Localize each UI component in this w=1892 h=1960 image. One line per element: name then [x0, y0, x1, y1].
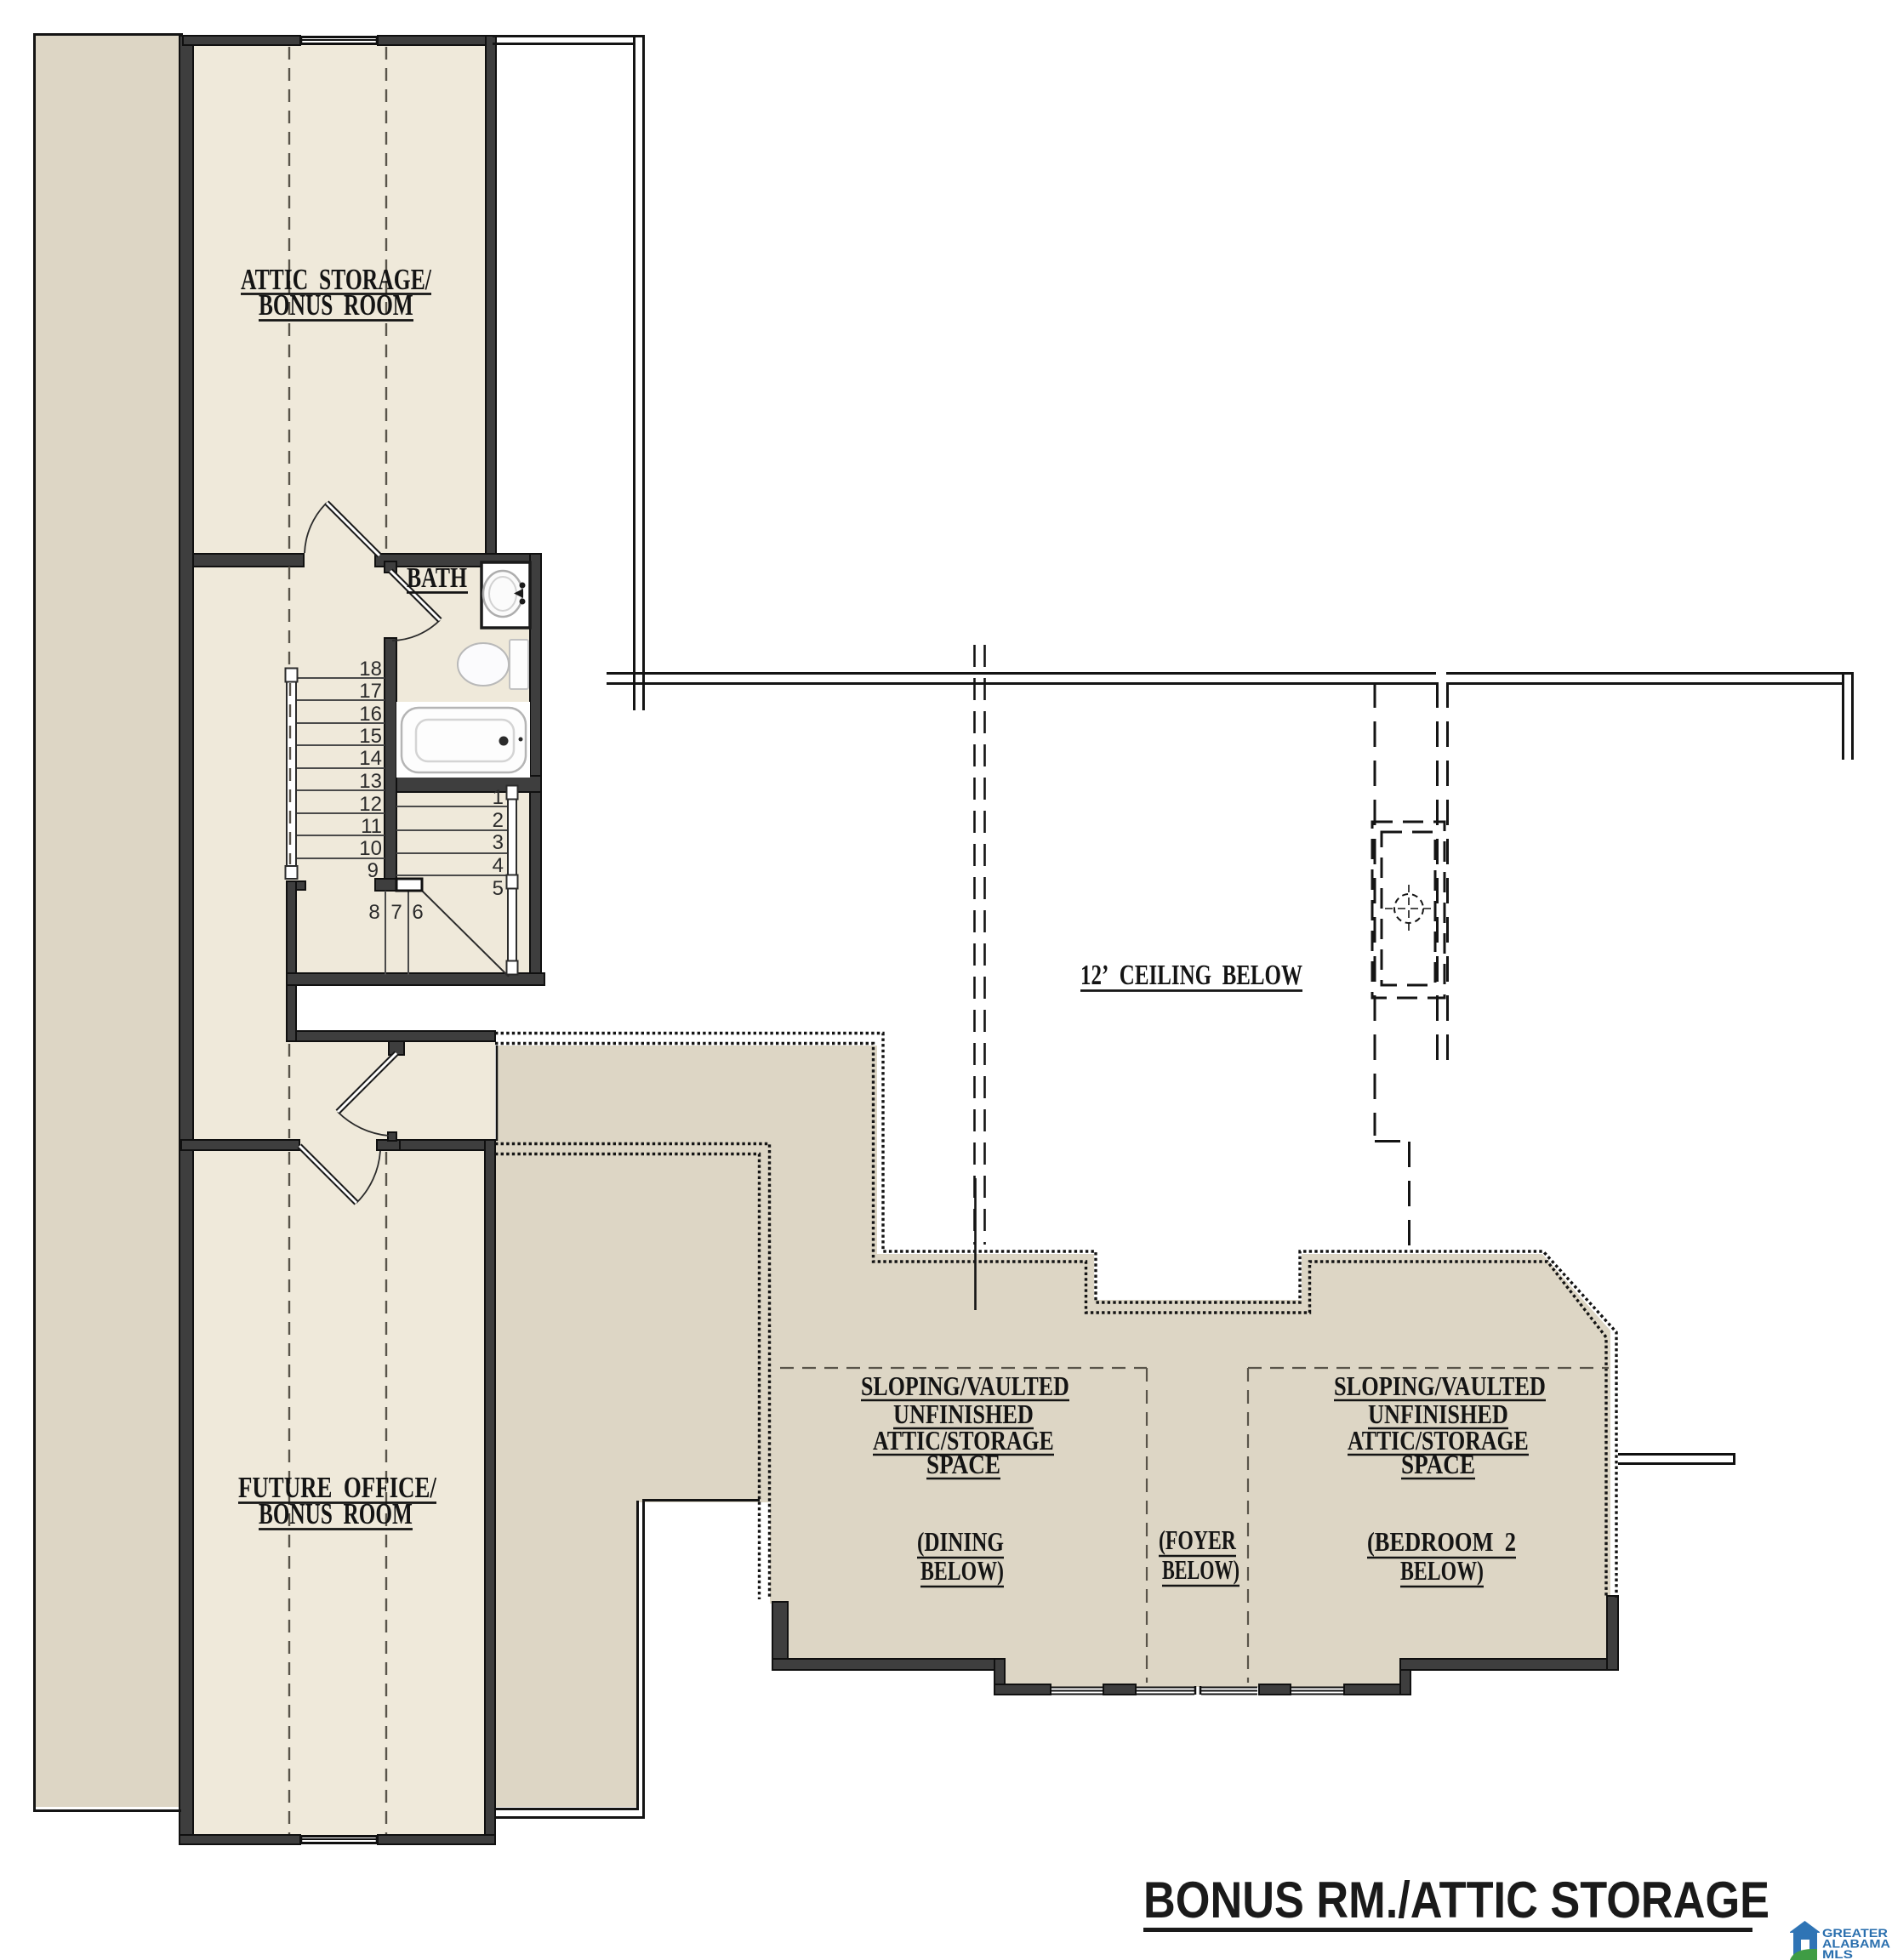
svg-text:18: 18 — [359, 658, 382, 681]
svg-text:13: 13 — [359, 770, 382, 793]
svg-text:BELOW): BELOW) — [1162, 1554, 1239, 1585]
svg-text:SLOPING/VAULTED: SLOPING/VAULTED — [861, 1372, 1069, 1402]
svg-text:MLS: MLS — [1822, 1948, 1853, 1960]
svg-text:12’ CEILING BELOW: 12’ CEILING BELOW — [1080, 959, 1302, 991]
svg-text:BELOW): BELOW) — [1400, 1557, 1484, 1587]
svg-text:14: 14 — [359, 747, 382, 770]
svg-text:11: 11 — [361, 815, 382, 838]
svg-text:9: 9 — [368, 859, 379, 882]
svg-text:8: 8 — [368, 901, 379, 924]
svg-text:17: 17 — [359, 680, 382, 703]
svg-text:SLOPING/VAULTED: SLOPING/VAULTED — [1334, 1372, 1546, 1402]
svg-text:2: 2 — [493, 809, 504, 832]
svg-text:(BEDROOM 2: (BEDROOM 2 — [1367, 1528, 1516, 1558]
svg-text:4: 4 — [493, 854, 504, 877]
svg-text:3: 3 — [493, 831, 504, 854]
svg-text:(DINING: (DINING — [917, 1527, 1004, 1558]
svg-text:5: 5 — [493, 877, 504, 900]
svg-text:6: 6 — [412, 901, 423, 924]
svg-text:UNFINISHED: UNFINISHED — [1368, 1400, 1508, 1430]
svg-text:15: 15 — [359, 725, 382, 748]
svg-text:10: 10 — [359, 837, 382, 860]
svg-text:12: 12 — [359, 793, 382, 816]
svg-text:BONUS RM./ATTIC STORAGE: BONUS RM./ATTIC STORAGE — [1143, 1872, 1769, 1929]
svg-text:1: 1 — [493, 786, 504, 809]
svg-text:BELOW): BELOW) — [920, 1557, 1004, 1587]
svg-text:7: 7 — [390, 901, 402, 924]
svg-text:(FOYER: (FOYER — [1159, 1526, 1237, 1556]
svg-text:UNFINISHED: UNFINISHED — [893, 1400, 1034, 1430]
svg-text:BATH: BATH — [407, 561, 467, 594]
svg-text:16: 16 — [359, 703, 382, 726]
